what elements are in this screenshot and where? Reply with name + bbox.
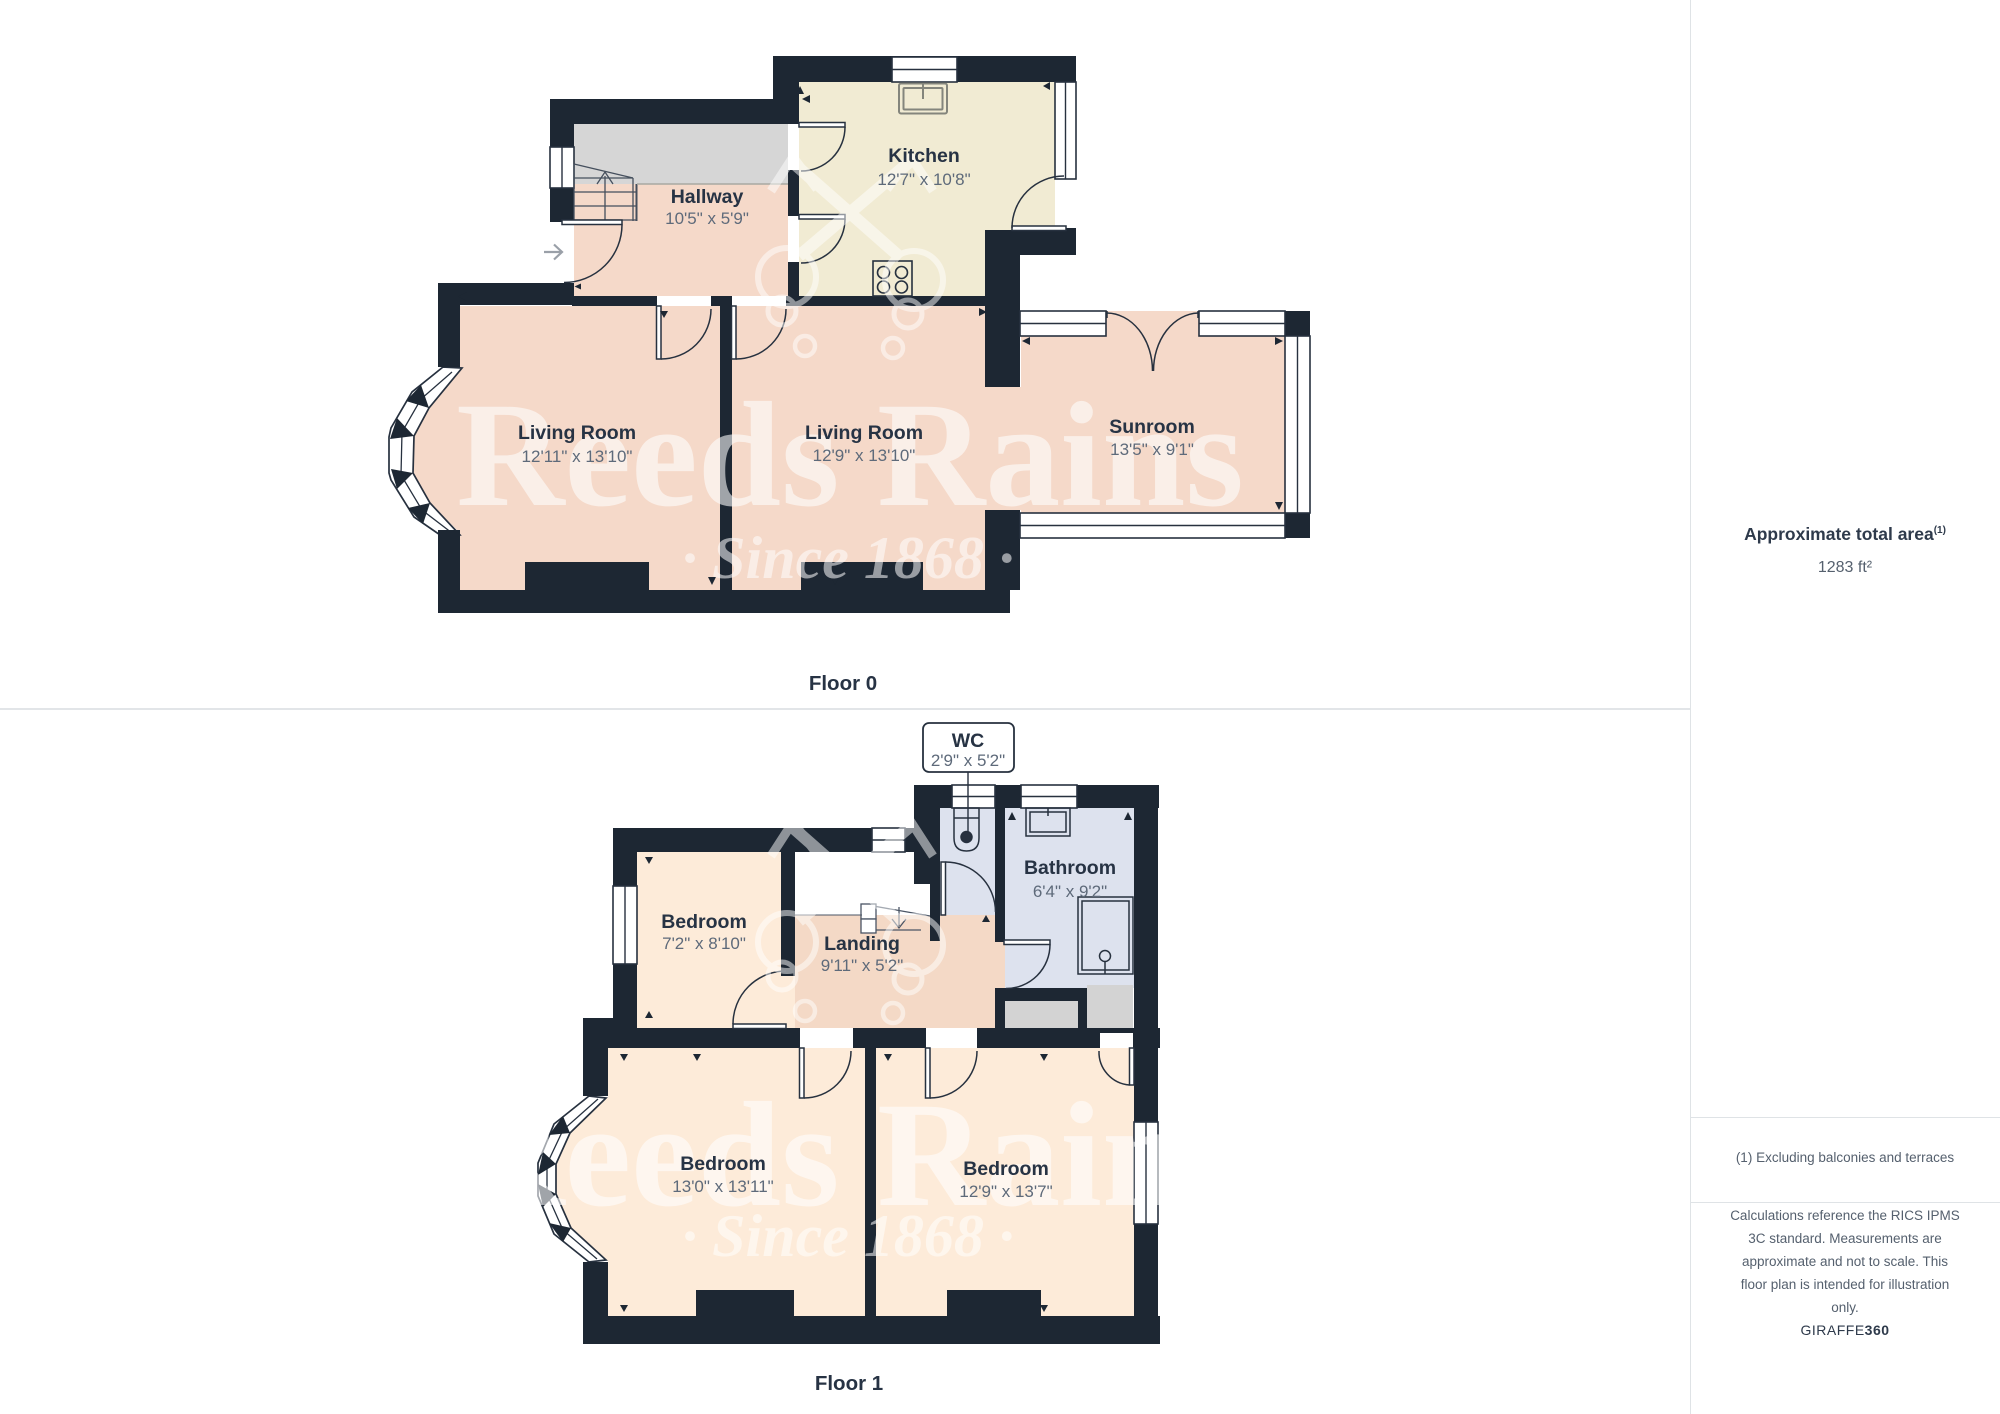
svg-text:10'5" x 5'9": 10'5" x 5'9" [665, 209, 749, 228]
svg-text:Bedroom: Bedroom [963, 1158, 1049, 1180]
svg-text:· Since 1868 ·: · Since 1868 · [682, 525, 1014, 591]
svg-text:· Since 1868 ·: · Since 1868 · [682, 1203, 1014, 1269]
svg-text:Landing: Landing [824, 933, 900, 955]
svg-text:Bedroom: Bedroom [680, 1153, 766, 1175]
svg-text:Hallway: Hallway [671, 186, 744, 208]
svg-text:WC: WC [952, 730, 985, 752]
svg-text:Bathroom: Bathroom [1024, 857, 1116, 879]
svg-text:12'11" x 13'10": 12'11" x 13'10" [522, 447, 633, 466]
svg-text:9'11" x 5'2": 9'11" x 5'2" [821, 956, 904, 975]
svg-text:2'9" x 5'2": 2'9" x 5'2" [931, 751, 1005, 770]
svg-text:Bedroom: Bedroom [661, 911, 747, 933]
svg-text:6'4" x 9'2": 6'4" x 9'2" [1033, 882, 1107, 901]
svg-text:Living Room: Living Room [518, 422, 636, 444]
svg-text:Floor 0: Floor 0 [809, 672, 877, 695]
svg-text:13'0" x 13'11": 13'0" x 13'11" [672, 1177, 773, 1196]
svg-text:13'5" x 9'1": 13'5" x 9'1" [1110, 440, 1194, 459]
svg-text:Sunroom: Sunroom [1109, 416, 1195, 438]
svg-text:7'2" x 8'10": 7'2" x 8'10" [662, 934, 746, 953]
svg-text:12'9" x 13'7": 12'9" x 13'7" [959, 1182, 1052, 1201]
svg-text:Kitchen: Kitchen [888, 145, 960, 167]
svg-text:Floor 1: Floor 1 [815, 1372, 883, 1395]
svg-text:Living Room: Living Room [805, 422, 923, 444]
svg-text:12'7" x 10'8": 12'7" x 10'8" [877, 170, 970, 189]
svg-text:12'9" x 13'10": 12'9" x 13'10" [813, 446, 916, 465]
